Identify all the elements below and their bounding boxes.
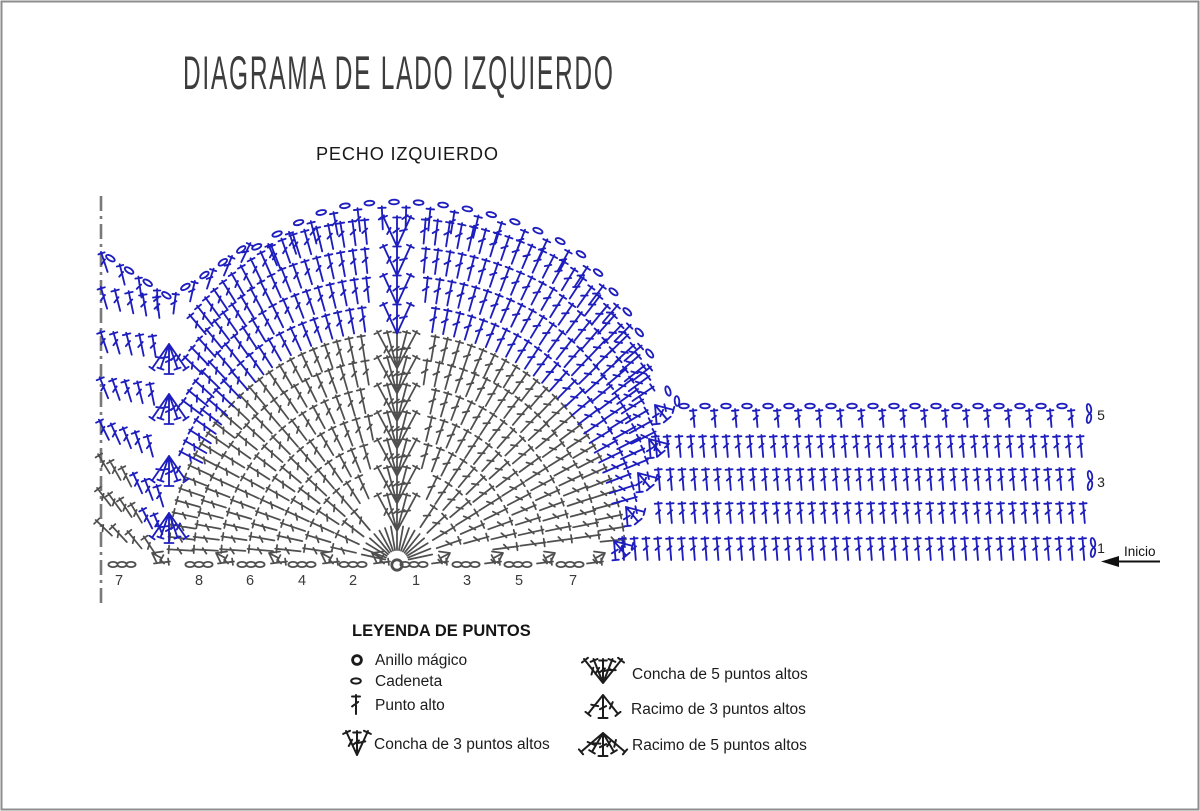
svg-text:Concha de 3 puntos altos: Concha de 3 puntos altos xyxy=(374,736,550,753)
svg-text:Inicio: Inicio xyxy=(1124,544,1156,559)
svg-text:3: 3 xyxy=(1097,474,1105,490)
svg-text:PECHO IZQUIERDO: PECHO IZQUIERDO xyxy=(316,144,499,164)
svg-text:Anillo mágico: Anillo mágico xyxy=(375,652,467,669)
svg-text:2: 2 xyxy=(349,573,357,589)
svg-text:DIAGRAMA DE LADO IZQUIERDO: DIAGRAMA DE LADO IZQUIERDO xyxy=(183,46,613,99)
svg-text:Cadeneta: Cadeneta xyxy=(375,673,443,690)
svg-text:LEYENDA DE PUNTOS: LEYENDA DE PUNTOS xyxy=(352,622,531,640)
svg-text:Racimo de 5 puntos altos: Racimo de 5 puntos altos xyxy=(632,737,807,754)
svg-text:7: 7 xyxy=(569,573,577,589)
svg-text:5: 5 xyxy=(1097,407,1105,423)
svg-text:6: 6 xyxy=(246,573,254,589)
svg-text:1: 1 xyxy=(1097,540,1105,556)
svg-text:8: 8 xyxy=(195,573,203,589)
svg-text:1: 1 xyxy=(412,573,420,589)
svg-text:7: 7 xyxy=(115,573,123,589)
svg-text:5: 5 xyxy=(515,573,523,589)
svg-text:Concha de 5 puntos altos: Concha de 5 puntos altos xyxy=(632,666,808,683)
svg-text:3: 3 xyxy=(463,573,471,589)
svg-text:Racimo de 3 puntos altos: Racimo de 3 puntos altos xyxy=(631,701,806,718)
svg-text:Punto alto: Punto alto xyxy=(375,697,445,714)
svg-text:4: 4 xyxy=(298,573,306,589)
